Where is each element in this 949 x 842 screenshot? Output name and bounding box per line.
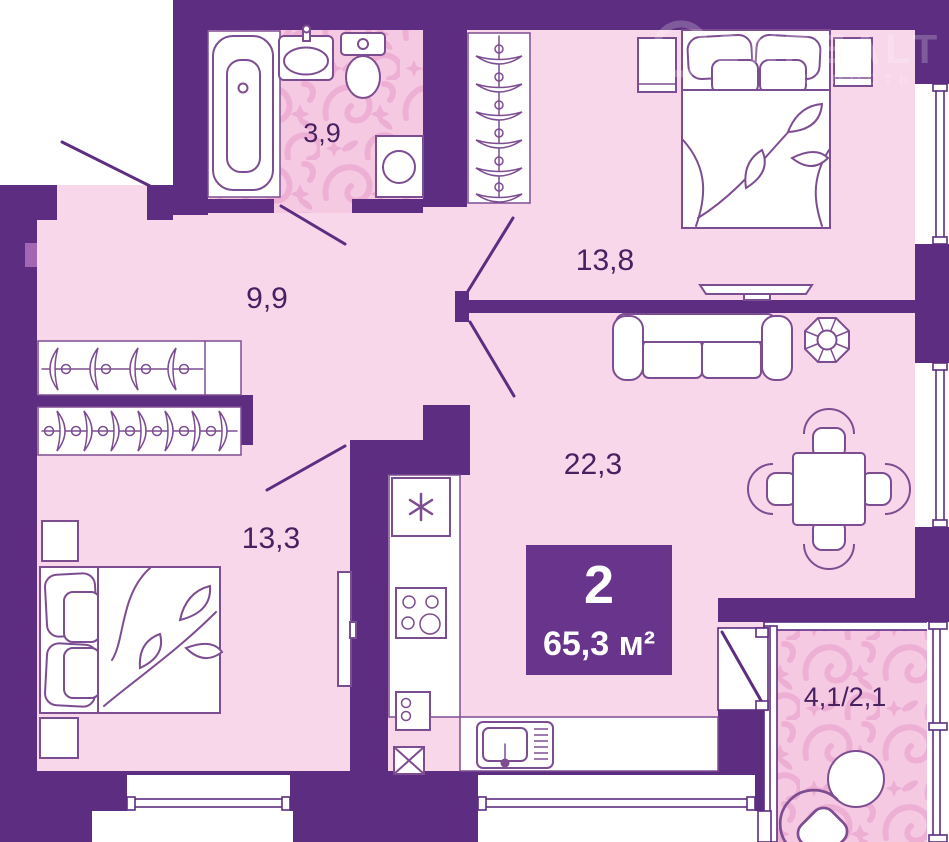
floor-plan: 2 65,3 м² 3,9 9,9 13,8 22,3 13,3 4,1/2,1… xyxy=(0,0,949,842)
watermark-tagline: НЕДВИЖИМОСТЬ xyxy=(714,72,915,87)
sofa-icon xyxy=(613,314,792,380)
plant-icon xyxy=(805,318,849,362)
window-bedroom-left xyxy=(127,775,290,811)
fridge-icon xyxy=(392,478,450,536)
window-living xyxy=(915,363,949,527)
watermark-brand: ONREALT xyxy=(712,26,942,72)
bedroom-top-wardrobe xyxy=(468,33,530,203)
room-label-bedroom-left: 13,3 xyxy=(242,522,300,555)
kitchen-cabinet-icon xyxy=(396,692,430,730)
bathtub-icon xyxy=(213,36,273,190)
balcony-floor xyxy=(777,630,927,842)
washing-machine-icon xyxy=(376,136,423,197)
bedroom-left-closet xyxy=(38,407,241,455)
badge-rooms-count: 2 xyxy=(584,555,614,615)
kitchen-sink-icon xyxy=(477,722,553,768)
room-label-bathroom: 3,9 xyxy=(303,118,341,148)
double-bed-icon xyxy=(40,567,222,713)
room-label-balcony: 4,1/2,1 xyxy=(804,682,887,712)
stove-icon xyxy=(396,588,446,638)
window-kitchen xyxy=(478,775,755,811)
vent-shaft-icon xyxy=(394,747,424,774)
bathroom-door-floor xyxy=(272,199,352,213)
area-badge: 2 65,3 м² xyxy=(526,545,672,675)
nightstand xyxy=(42,521,78,561)
dining-table xyxy=(793,453,865,525)
window-bedroom-top xyxy=(915,84,949,244)
badge-total-area: 65,3 м² xyxy=(543,625,655,663)
wall-panel xyxy=(25,243,37,267)
floor-plan-page: 2 65,3 м² 3,9 9,9 13,8 22,3 13,3 4,1/2,1… xyxy=(0,0,949,842)
room-label-bedroom-top: 13,8 xyxy=(576,244,634,277)
room-label-living: 22,3 xyxy=(564,448,622,481)
balcony-door xyxy=(718,628,768,710)
balcony-top-glazing xyxy=(764,622,930,630)
nightstand xyxy=(40,718,78,758)
hall-closet xyxy=(38,341,241,395)
room-label-hallway: 9,9 xyxy=(246,282,288,315)
